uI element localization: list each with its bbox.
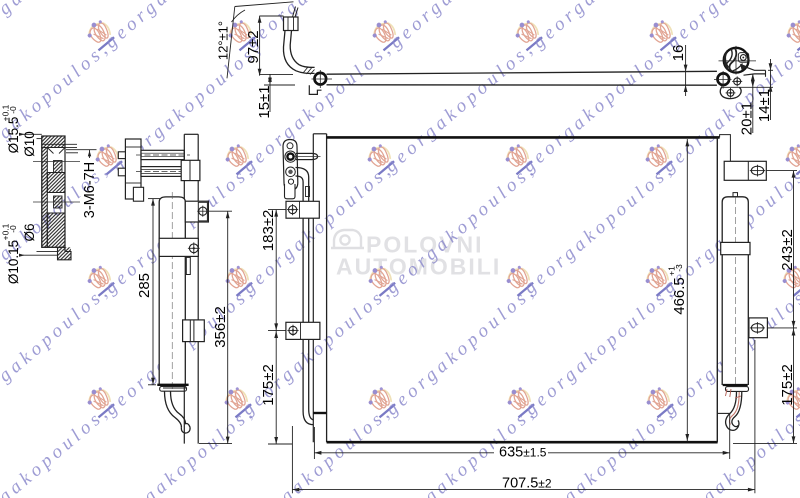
svg-text:12°±1°: 12°±1° [216, 21, 231, 60]
svg-text:97±2: 97±2 [245, 30, 262, 63]
svg-text:14±1: 14±1 [756, 89, 773, 122]
svg-text:183±2: 183±2 [260, 210, 277, 252]
svg-text:175±2: 175±2 [260, 364, 277, 406]
svg-text:georgakopoulos,: georgakopoulos, [238, 401, 397, 498]
svg-text:georgakopoulos,: georgakopoulos, [519, 37, 678, 177]
svg-text:-0: -0 [8, 106, 18, 114]
svg-text:635±1.5: 635±1.5 [499, 445, 547, 461]
svg-text:-3: -3 [674, 264, 684, 272]
svg-text:-0: -0 [8, 225, 18, 233]
svg-text:243±2: 243±2 [779, 229, 796, 271]
svg-text:15±1: 15±1 [256, 85, 273, 118]
svg-text:285: 285 [136, 273, 153, 298]
svg-text:466.5: 466.5 [671, 277, 688, 315]
svg-text:Ø10.15: Ø10.15 [6, 240, 21, 284]
svg-text:16: 16 [670, 45, 687, 62]
svg-text:georgakopoulos,: georgakopoulos, [521, 280, 680, 420]
svg-text:3-M6-7H: 3-M6-7H [82, 162, 98, 218]
svg-text:georgakopoulos,: georgakopoulos, [520, 158, 679, 298]
svg-text:georgakopoulos,: georgakopoulos, [381, 37, 540, 177]
svg-text:georgakopoulos,: georgakopoulos, [0, 280, 114, 420]
svg-text:356±2: 356±2 [212, 306, 229, 348]
svg-text:175±2: 175±2 [779, 364, 796, 406]
svg-text:georgakopoulos,: georgakopoulos, [0, 401, 114, 498]
svg-text:707.5±2: 707.5±2 [502, 476, 552, 492]
svg-text:georgakopoulos,: georgakopoulos, [382, 280, 541, 420]
svg-text:Ø6: Ø6 [22, 223, 37, 241]
svg-text:Ø10: Ø10 [22, 131, 37, 157]
svg-text:georgakopoulos,: georgakopoulos, [101, 401, 260, 498]
svg-text:20±1: 20±1 [739, 102, 756, 135]
